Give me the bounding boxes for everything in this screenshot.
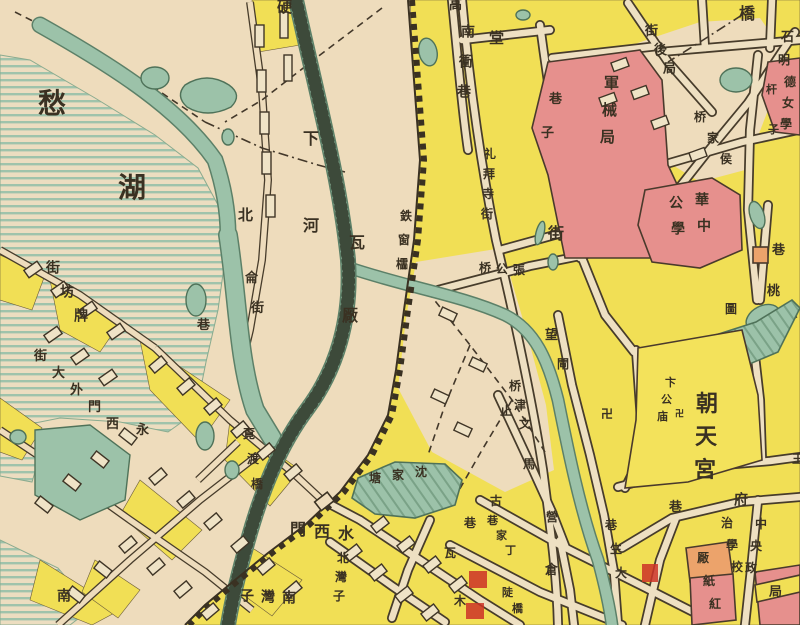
small-orange-block (753, 247, 768, 263)
label-temple-swastika-2: 卍 (675, 409, 684, 420)
label-hongzhi-chang: 厰 (697, 551, 709, 565)
label-qiao-top-right: 橋 (739, 4, 756, 23)
label-central-political-school-col2: 學 (726, 537, 738, 552)
label-biangong-ci: 卞 (665, 375, 676, 389)
label-libaisi-jie: 寺 (482, 186, 494, 201)
label-central-political-school-col2: 校 (731, 559, 744, 574)
label-chaotiangong: 宮 (694, 457, 716, 483)
label-shuiximen-gate: 西 (314, 522, 330, 541)
label-mochou-lake-chou: 愁 (38, 87, 66, 120)
label-jie-westbank: 街 (250, 300, 264, 316)
label-yong-westbank: 永 (135, 422, 150, 438)
label-ming-edge: 明 (778, 53, 790, 67)
label-xiang-westbank: 巷 (196, 317, 211, 333)
label-nanwanzi: 灣 (261, 589, 275, 606)
label-biangong-ci: 公 (661, 393, 672, 406)
label-ganzi-street: 杆 (766, 82, 777, 96)
label-midu-qiao: 渡 (247, 451, 260, 466)
label-biangong-ci: 庙 (657, 409, 668, 423)
building-footprint (257, 70, 266, 92)
map-viewport: 愁湖硬下河北侖街巷街坊牌街大外門西永覔渡橋南子灣南北灣子門西水瓦厰鉄窗櫺高南衝巷… (0, 0, 800, 625)
label-chaotiangong: 天 (695, 425, 718, 450)
label-shenjiatang-pond: 沈 (415, 464, 427, 479)
label-huazhong-gongxue-col2: 公 (669, 196, 683, 212)
building-footprint (266, 195, 275, 217)
label-juhou-jie: 後 (654, 42, 668, 58)
label-central-political-school-col1: 央 (750, 538, 763, 553)
label-zhimaying: 營 (546, 509, 558, 524)
label-cang-char: 倉 (544, 562, 559, 578)
label-houjia-qiao: 家 (707, 130, 720, 145)
label-wang-char: 望 (545, 327, 558, 343)
label-mochou-lake-hu: 湖 (118, 171, 146, 204)
label-beiwanzi: 北 (337, 550, 349, 565)
label-libaisi-jie: 街 (480, 206, 493, 221)
label-temple-swastika-1: 卍 (601, 407, 613, 421)
label-shuiximen-gate: 門 (290, 520, 306, 539)
label-shenjiatang-pond: 塘 (369, 470, 381, 485)
label-ju-block: 局 (769, 585, 782, 600)
label-nan-bottom-left: 南 (57, 588, 71, 605)
label-junxieju-arsenal: 軍 (604, 74, 619, 92)
label-xiang-fu: 巷 (668, 499, 683, 515)
label-central-political-school-col2: 治 (721, 515, 733, 530)
label-zha-char: 閘 (557, 357, 569, 371)
label-ganzi-street: 子 (768, 123, 779, 136)
label-nanchong-xiang: 衝 (458, 54, 473, 71)
label-paifang-jie: 街 (45, 260, 60, 277)
label-ximenwai-dajie: 外 (69, 382, 83, 398)
label-fu-char: 府 (734, 492, 748, 509)
label-dingjia-xiang: 巷 (486, 513, 499, 527)
label-beiwanzi: 灣 (335, 569, 347, 584)
label-ximenwai-dajie: 街 (33, 348, 47, 364)
label-gao-top-edge: 高 (449, 0, 462, 13)
label-shi-edge: 石 (780, 30, 794, 45)
building-footprint (262, 152, 271, 174)
label-xiang-northeast: 巷 (771, 242, 786, 258)
label-dasheng-xiang: 大 (615, 565, 627, 580)
label-junxieju-xiangzi: 子 (541, 126, 554, 141)
label-tiechuangling: 窗 (398, 232, 410, 247)
label-paifang-jie: 坊 (60, 284, 74, 301)
label-xiang-center-south: 巷 (463, 515, 477, 530)
label-beiwanzi: 子 (333, 589, 345, 603)
label-houjia-qiao: 桥 (694, 109, 707, 124)
building-footprint (255, 25, 264, 47)
label-central-political-school-col1: 中 (755, 516, 767, 531)
label-tang: 堂 (489, 29, 504, 47)
label-jie-center: 街 (547, 224, 564, 243)
label-zhanggong-qiao: 公 (496, 262, 508, 276)
label-junxieju-arsenal: 局 (599, 128, 615, 146)
label-houjia-qiao: 侯 (720, 151, 733, 166)
label-ximenwai-dajie: 西 (106, 417, 119, 432)
label-zhimaying: 馬 (523, 457, 535, 471)
label-zhanggong-qiao: 張 (513, 263, 526, 277)
label-ximenwai-dajie: 大 (52, 365, 65, 381)
label-libaisi-jie: 拜 (483, 166, 495, 181)
label-shuiximen-gate: 水 (338, 524, 355, 543)
label-tiechuangling: 鉄 (400, 208, 412, 223)
label-zhanggong-qiao: 桥 (479, 260, 492, 275)
label-wenjin-qiao: 津 (514, 397, 526, 412)
label-bei-riverbank: 北 (238, 206, 253, 224)
label-shenjiatang-pond: 家 (392, 467, 405, 482)
label-junxieju-xiangzi: 巷 (548, 91, 563, 107)
label-zhimaying: 止 (500, 403, 512, 418)
label-juhou-jie: 局 (663, 62, 676, 77)
label-dasheng-xiang: 巷 (604, 517, 618, 532)
label-wang-right-edge: 王 (792, 452, 800, 466)
label-nanchong-xiang: 南 (461, 24, 475, 41)
label-wenjin-qiao: 桥 (509, 378, 522, 393)
label-dingjia-xiang: 丁 (505, 544, 516, 557)
label-junxieju-arsenal: 械 (602, 101, 617, 119)
label-lun-westbank: 侖 (245, 270, 259, 286)
label-tiechuangling: 櫺 (396, 256, 408, 271)
label-ximenwai-dajie: 門 (88, 400, 101, 415)
label-xiahe-he: 河 (303, 216, 319, 235)
label-midu-qiao: 橋 (251, 476, 264, 491)
huazhong-school-block (638, 178, 742, 268)
label-central-political-school-col1: 政 (745, 560, 758, 575)
label-dou-qiao: 陡 (502, 585, 514, 599)
label-tu-char: 圖 (725, 302, 737, 316)
label-mu-center-south: 木 (453, 593, 467, 608)
label-nanwanzi: 子 (240, 589, 254, 605)
label-dou-qiao: 橋 (512, 601, 524, 615)
label-wa-center-south: 瓦 (444, 546, 456, 560)
label-wachang: 瓦 (349, 233, 365, 252)
label-huazhong-gongxue-col1: 華 (695, 192, 709, 209)
label-ying-top-edge: 硬 (277, 0, 293, 16)
label-dasheng-xiang: 生 (610, 541, 622, 556)
label-paifang-jie: 牌 (74, 308, 88, 325)
label-mingde-girls-school: 學 (780, 116, 792, 131)
label-wenjin-qiao: 文 (519, 416, 532, 431)
label-huazhong-gongxue-col1: 中 (697, 218, 711, 235)
label-nanchong-xiang: 巷 (456, 84, 472, 101)
label-juhou-jie: 街 (644, 23, 658, 39)
label-libaisi-jie: 礼 (484, 146, 496, 161)
building-footprint (284, 55, 292, 81)
label-chaotiangong: 朝 (696, 391, 718, 417)
label-mingde-girls-school: 女 (782, 95, 794, 110)
label-hongzhi-chang: 紙 (703, 573, 715, 588)
label-mingde-girls-school: 德 (784, 74, 796, 89)
label-tao-char: 桃 (767, 283, 780, 299)
label-nanwanzi: 南 (282, 590, 296, 607)
label-midu-qiao: 覔 (242, 427, 255, 441)
label-hongzhi-chang: 紅 (709, 596, 721, 611)
label-dingjia-xiang: 家 (496, 528, 508, 542)
building-footprint (260, 112, 269, 134)
label-gu-char: 古 (490, 493, 502, 508)
label-huazhong-gongxue-col2: 學 (671, 222, 685, 238)
label-wachang: 厰 (342, 306, 358, 325)
label-xiahe-xia: 下 (303, 129, 319, 148)
map-canvas: 愁湖硬下河北侖街巷街坊牌街大外門西永覔渡橋南子灣南北灣子門西水瓦厰鉄窗櫺高南衝巷… (0, 0, 800, 625)
